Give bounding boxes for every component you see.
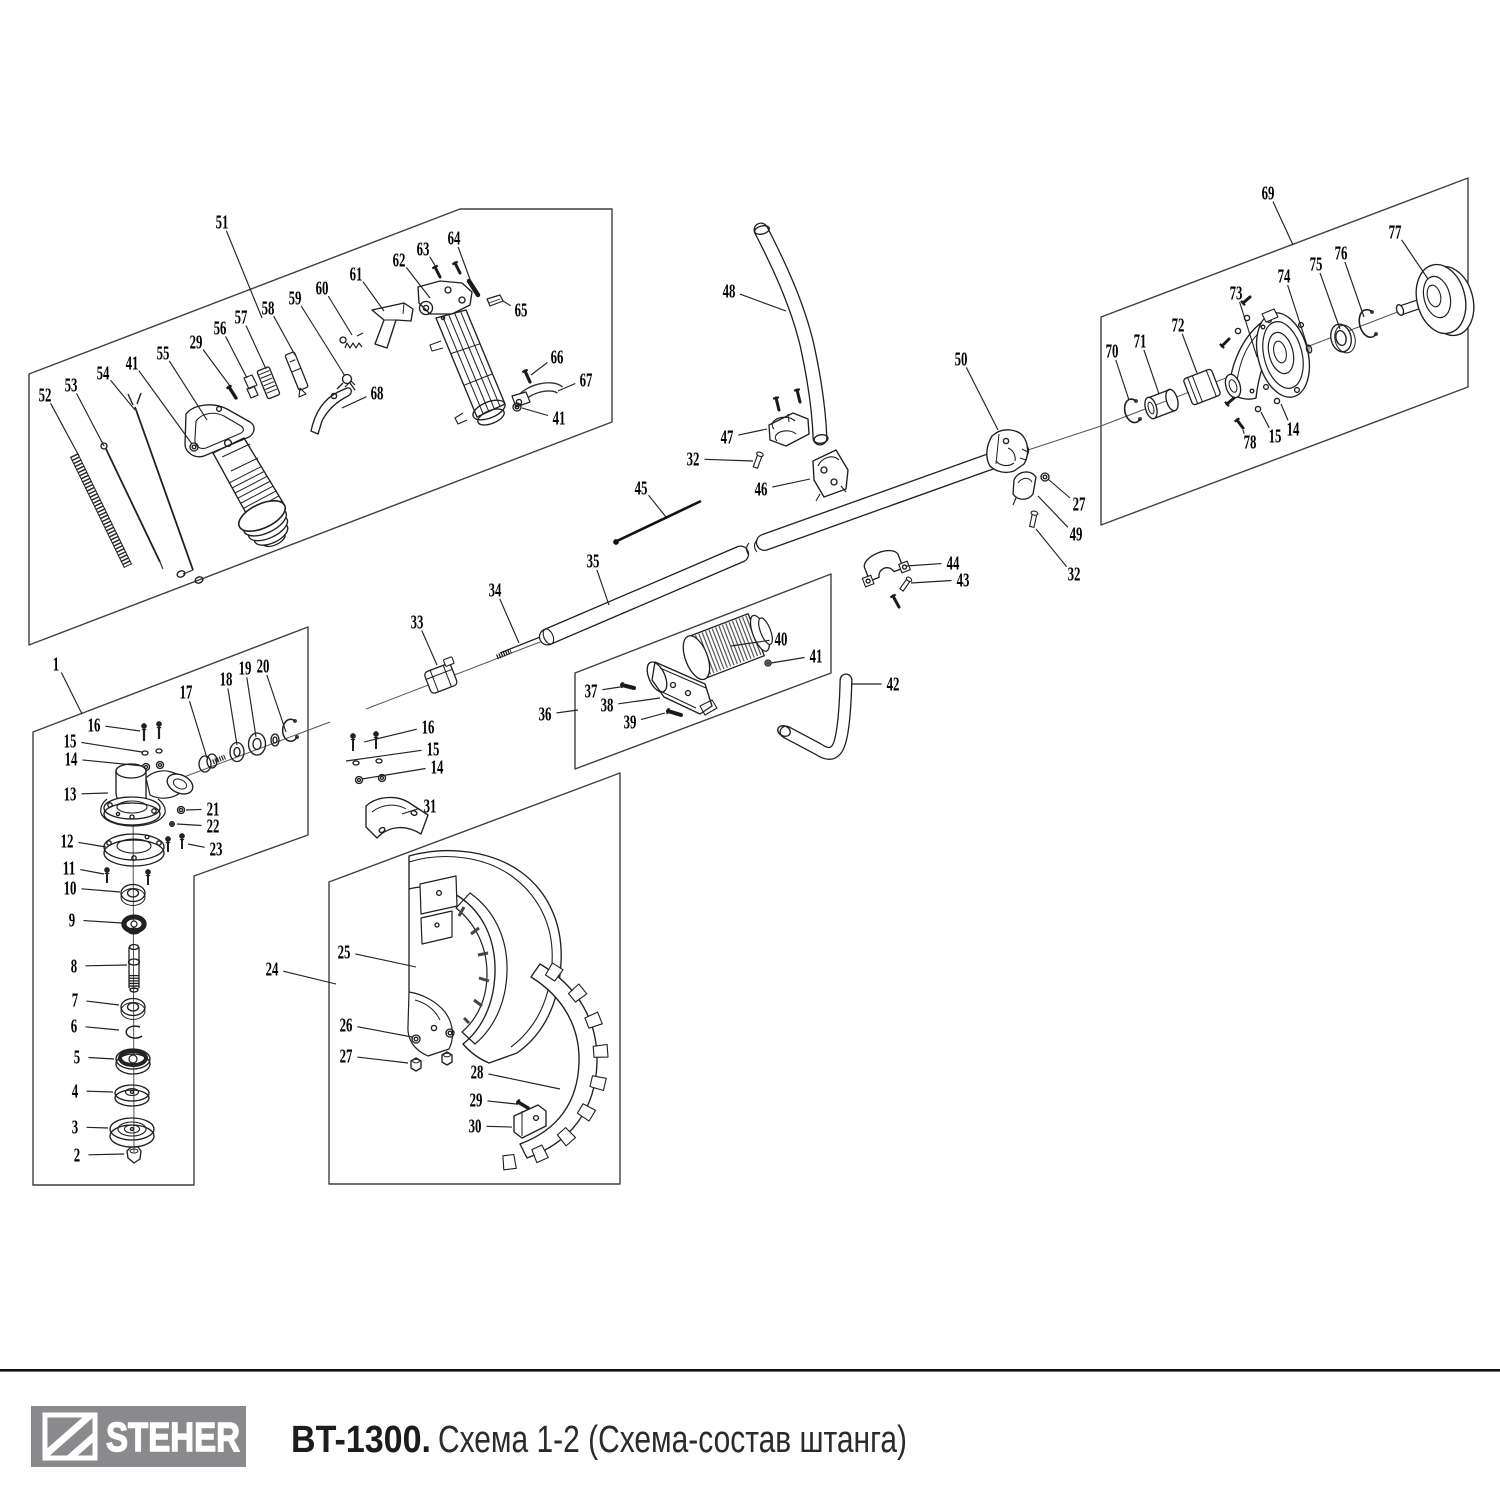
svg-text:41: 41 <box>810 646 823 668</box>
svg-text:16: 16 <box>422 717 435 739</box>
svg-text:24: 24 <box>266 959 279 981</box>
svg-text:62: 62 <box>393 250 406 272</box>
svg-text:28: 28 <box>471 1062 484 1084</box>
svg-text:11: 11 <box>63 858 76 880</box>
svg-text:14: 14 <box>431 757 444 779</box>
svg-text:31: 31 <box>424 796 437 818</box>
svg-text:22: 22 <box>207 816 220 838</box>
svg-text:67: 67 <box>580 370 593 392</box>
svg-text:36: 36 <box>539 704 552 726</box>
svg-text:69: 69 <box>1262 183 1275 205</box>
svg-text:7: 7 <box>72 990 78 1012</box>
svg-text:52: 52 <box>39 385 52 407</box>
svg-text:41: 41 <box>553 408 566 430</box>
svg-text:35: 35 <box>587 551 600 573</box>
svg-text:BT-1300.: BT-1300. <box>291 1419 431 1461</box>
svg-text:74: 74 <box>1278 266 1291 288</box>
svg-text:26: 26 <box>340 1015 353 1037</box>
svg-text:54: 54 <box>97 363 110 385</box>
svg-text:32: 32 <box>1068 564 1081 586</box>
svg-text:41: 41 <box>126 353 139 375</box>
svg-text:5: 5 <box>74 1047 80 1069</box>
svg-text:65: 65 <box>515 300 528 322</box>
svg-text:50: 50 <box>955 349 968 371</box>
svg-text:23: 23 <box>210 839 223 861</box>
svg-text:77: 77 <box>1389 222 1402 244</box>
svg-text:12: 12 <box>61 831 74 853</box>
svg-text:9: 9 <box>69 910 75 932</box>
svg-text:34: 34 <box>489 580 502 602</box>
svg-text:32: 32 <box>687 449 700 471</box>
svg-text:39: 39 <box>624 712 637 734</box>
svg-text:60: 60 <box>316 278 329 300</box>
svg-text:40: 40 <box>775 629 788 651</box>
svg-text:16: 16 <box>88 715 101 737</box>
svg-text:66: 66 <box>551 347 564 369</box>
svg-text:78: 78 <box>1244 432 1257 454</box>
svg-text:38: 38 <box>601 695 614 717</box>
svg-text:6: 6 <box>71 1016 77 1038</box>
svg-text:68: 68 <box>371 383 384 405</box>
svg-text:56: 56 <box>214 318 227 340</box>
svg-text:48: 48 <box>723 281 736 303</box>
svg-text:42: 42 <box>887 674 900 696</box>
svg-text:Схема 1-2 (Схема-состав штанга: Схема 1-2 (Схема-состав штанга) <box>438 1419 907 1461</box>
svg-text:27: 27 <box>1073 494 1086 516</box>
svg-text:75: 75 <box>1310 254 1323 276</box>
svg-text:70: 70 <box>1106 341 1119 363</box>
svg-text:71: 71 <box>1134 331 1147 353</box>
svg-text:10: 10 <box>64 878 77 900</box>
svg-text:27: 27 <box>340 1046 353 1068</box>
svg-text:61: 61 <box>350 264 363 286</box>
svg-text:47: 47 <box>721 427 734 449</box>
svg-text:14: 14 <box>1287 419 1300 441</box>
svg-text:49: 49 <box>1070 524 1083 546</box>
svg-text:17: 17 <box>180 682 193 704</box>
svg-text:25: 25 <box>338 942 351 964</box>
svg-text:30: 30 <box>469 1116 482 1138</box>
svg-text:57: 57 <box>235 307 248 329</box>
svg-text:72: 72 <box>1172 315 1185 337</box>
svg-text:14: 14 <box>65 749 78 771</box>
svg-text:63: 63 <box>417 239 430 261</box>
svg-text:1: 1 <box>53 654 59 676</box>
svg-text:8: 8 <box>71 956 77 978</box>
svg-text:20: 20 <box>257 656 270 678</box>
svg-text:58: 58 <box>262 298 275 320</box>
svg-text:51: 51 <box>216 212 229 234</box>
svg-text:55: 55 <box>157 343 170 365</box>
svg-text:43: 43 <box>957 570 970 592</box>
svg-text:76: 76 <box>1335 243 1348 265</box>
svg-text:73: 73 <box>1230 283 1243 305</box>
svg-text:46: 46 <box>755 479 768 501</box>
svg-text:18: 18 <box>220 669 233 691</box>
svg-text:29: 29 <box>190 332 203 354</box>
svg-text:37: 37 <box>585 681 598 703</box>
svg-text:STEHER: STEHER <box>106 1414 240 1460</box>
svg-text:29: 29 <box>470 1090 483 1112</box>
svg-text:19: 19 <box>239 658 252 680</box>
svg-text:15: 15 <box>1269 426 1282 448</box>
svg-text:3: 3 <box>72 1117 78 1139</box>
svg-text:53: 53 <box>65 375 78 397</box>
svg-text:64: 64 <box>448 228 461 250</box>
svg-text:4: 4 <box>72 1081 78 1103</box>
svg-text:13: 13 <box>64 784 77 806</box>
svg-text:2: 2 <box>74 1145 80 1167</box>
svg-text:59: 59 <box>289 288 302 310</box>
svg-text:45: 45 <box>635 478 648 500</box>
svg-text:33: 33 <box>411 612 424 634</box>
